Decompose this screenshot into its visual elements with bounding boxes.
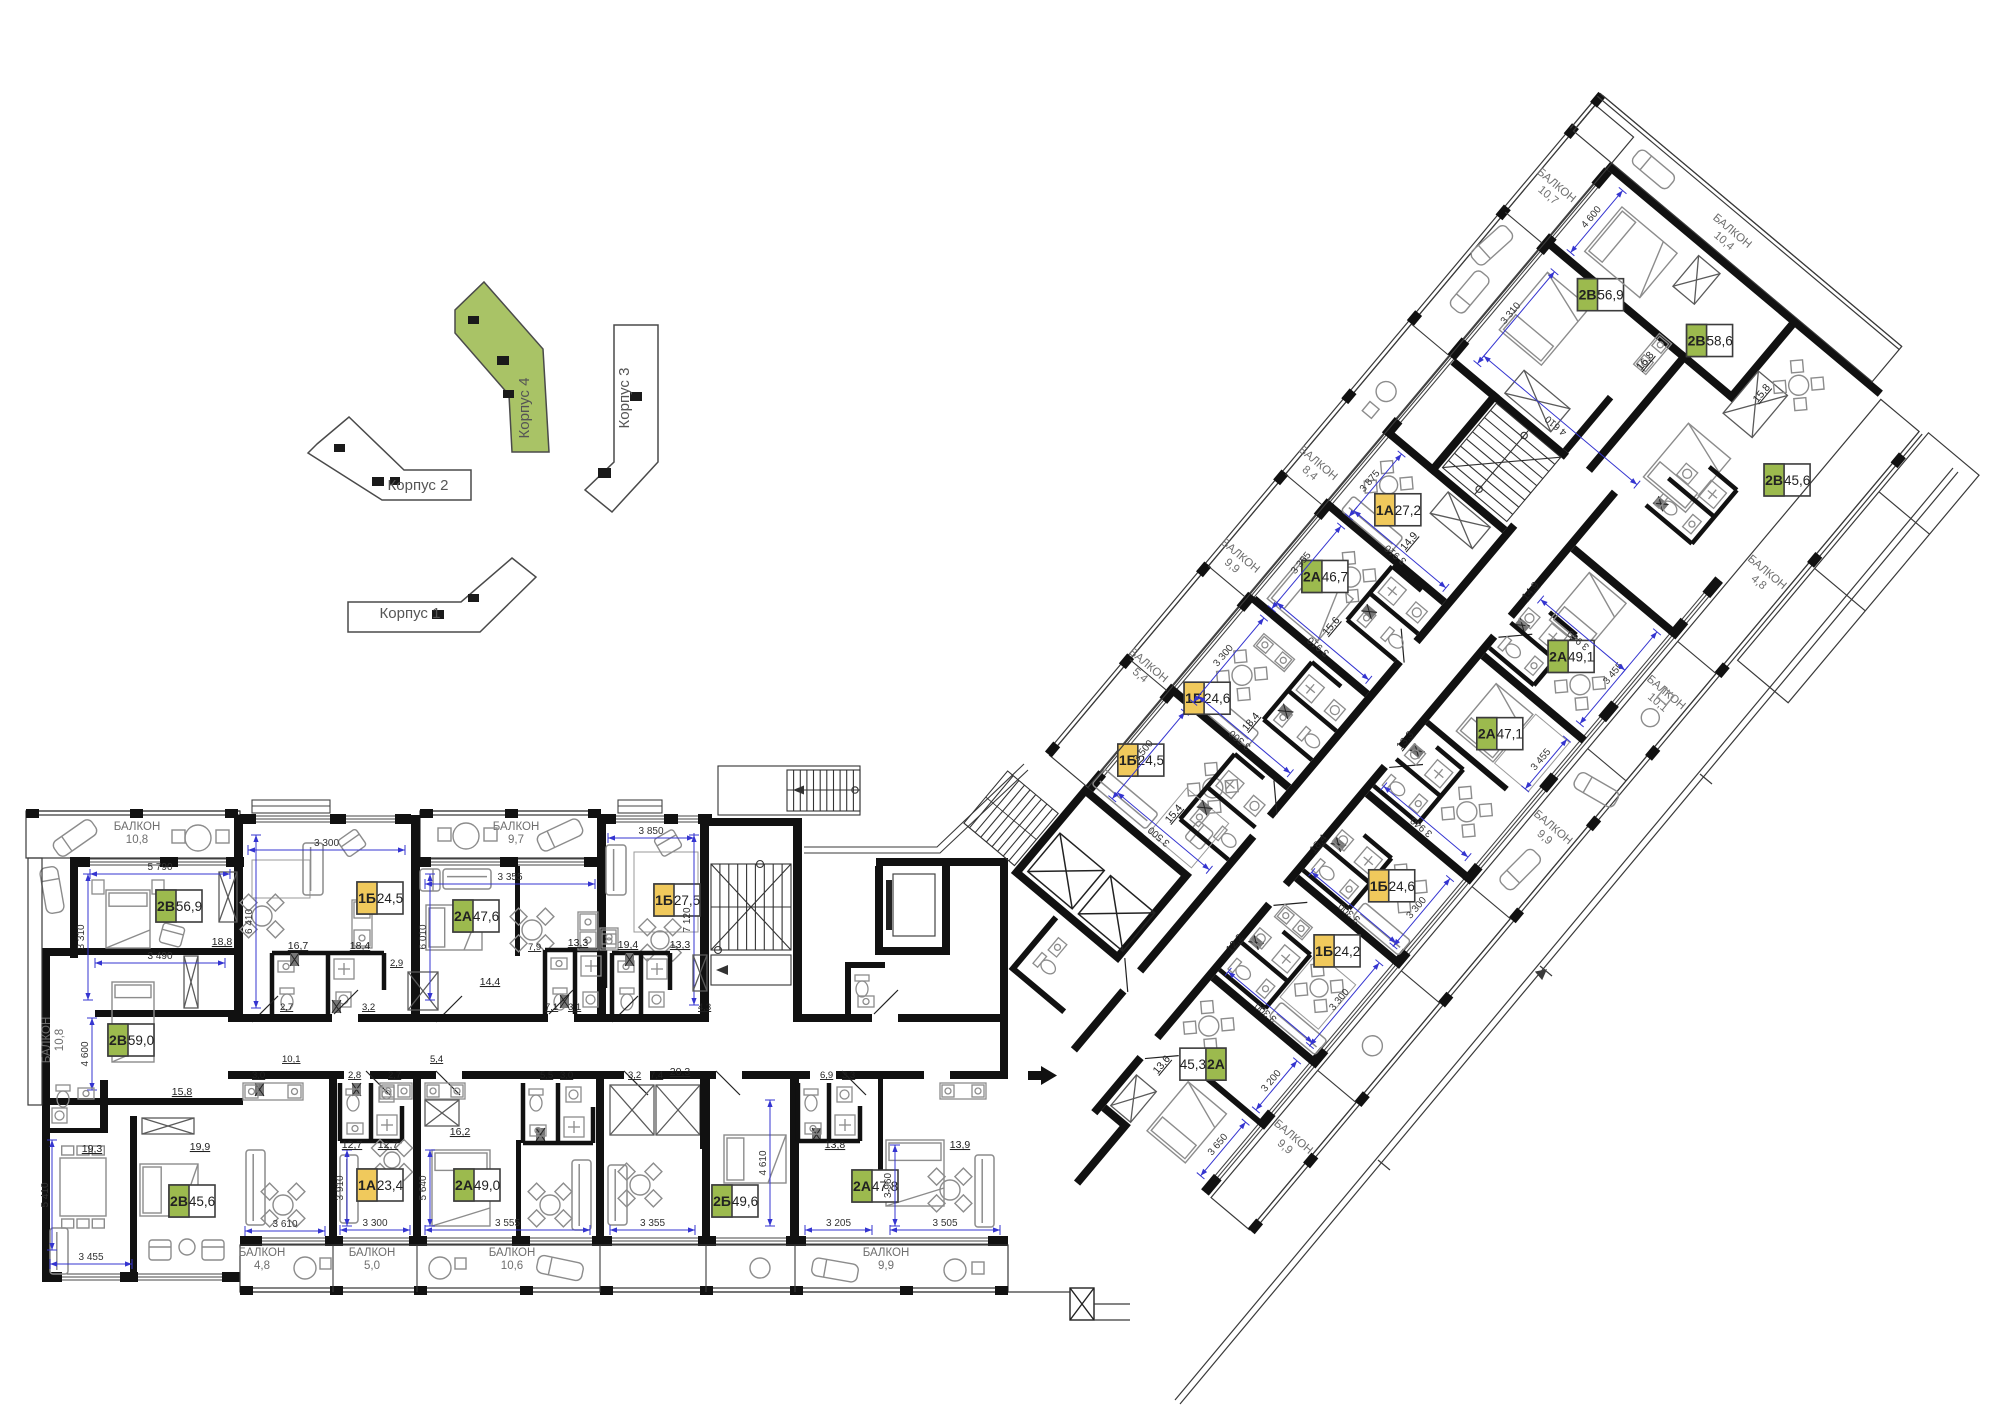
svg-text:45,6: 45,6 (189, 1194, 215, 1209)
svg-text:БАЛКОН: БАЛКОН (239, 1247, 286, 1259)
svg-text:2B: 2B (1579, 287, 1597, 303)
svg-text:3 910: 3 910 (335, 1175, 346, 1200)
svg-text:Корпус 1: Корпус 1 (380, 605, 441, 622)
svg-text:5 640: 5 640 (418, 1175, 429, 1200)
svg-text:Корпус 4: Корпус 4 (516, 378, 533, 439)
svg-text:7,9: 7,9 (528, 942, 541, 953)
svg-text:6 010: 6 010 (418, 924, 429, 949)
svg-text:3,3: 3,3 (842, 1070, 855, 1081)
svg-text:24,5: 24,5 (377, 891, 403, 906)
svg-text:Корпус 3: Корпус 3 (616, 368, 633, 429)
svg-text:13,8: 13,8 (825, 1139, 846, 1151)
svg-text:18,8: 18,8 (212, 936, 233, 948)
svg-text:2A: 2A (454, 908, 472, 924)
svg-text:1Б: 1Б (1370, 878, 1388, 894)
svg-text:2B: 2B (109, 1032, 127, 1048)
svg-text:2B: 2B (1688, 333, 1706, 349)
svg-text:3 960: 3 960 (883, 1173, 894, 1198)
svg-text:2B: 2B (1765, 472, 1783, 488)
svg-text:12,7: 12,7 (342, 1139, 363, 1151)
svg-text:3 555: 3 555 (495, 1218, 520, 1229)
svg-text:49,6: 49,6 (732, 1194, 758, 1209)
svg-text:3 300: 3 300 (314, 838, 339, 849)
svg-text:46,7: 46,7 (1322, 569, 1348, 584)
svg-text:2A: 2A (1207, 1056, 1225, 1072)
svg-text:БАЛКОН: БАЛКОН (349, 1247, 396, 1259)
svg-text:4,8: 4,8 (254, 1260, 270, 1272)
svg-text:7,4: 7,4 (650, 1070, 663, 1081)
svg-text:20,3: 20,3 (670, 1066, 691, 1078)
svg-text:БАЛКОН: БАЛКОН (863, 1247, 910, 1259)
svg-text:27,2: 27,2 (1395, 503, 1421, 518)
svg-text:3,1: 3,1 (568, 1002, 581, 1013)
svg-text:1A: 1A (358, 1177, 376, 1193)
svg-text:6,9: 6,9 (820, 1070, 833, 1081)
svg-text:24,2: 24,2 (1334, 944, 1360, 959)
svg-text:2,7: 2,7 (388, 1070, 401, 1081)
svg-text:3 455: 3 455 (78, 1252, 103, 1263)
svg-text:5,5: 5,5 (540, 1070, 553, 1081)
svg-text:Корпус 2: Корпус 2 (388, 477, 449, 494)
svg-text:2,8: 2,8 (348, 1070, 361, 1081)
svg-text:3 610: 3 610 (272, 1219, 297, 1230)
svg-text:3 850: 3 850 (638, 826, 663, 837)
svg-text:14,4: 14,4 (480, 976, 501, 988)
svg-text:3 505: 3 505 (932, 1218, 957, 1229)
svg-text:47,1: 47,1 (1497, 727, 1523, 742)
svg-text:47,6: 47,6 (473, 909, 499, 924)
svg-text:7,1: 7,1 (545, 1002, 558, 1013)
svg-text:2,7: 2,7 (280, 1002, 293, 1013)
svg-text:2B: 2B (170, 1193, 188, 1209)
svg-text:19,4: 19,4 (618, 939, 639, 951)
svg-text:БАЛКОН: БАЛКОН (114, 821, 161, 833)
svg-text:1Б: 1Б (1315, 943, 1333, 959)
svg-text:1Б: 1Б (358, 890, 376, 906)
svg-text:10,6: 10,6 (501, 1260, 523, 1272)
svg-text:1Б: 1Б (655, 892, 673, 908)
svg-text:6 410: 6 410 (244, 909, 255, 934)
svg-text:49,0: 49,0 (474, 1178, 500, 1193)
svg-text:2,9: 2,9 (390, 958, 403, 969)
svg-text:19,9: 19,9 (190, 1141, 211, 1153)
svg-text:16,2: 16,2 (450, 1126, 471, 1138)
svg-text:12,7: 12,7 (378, 1139, 399, 1151)
svg-text:5 790: 5 790 (147, 862, 172, 873)
svg-text:3 300: 3 300 (362, 1218, 387, 1229)
svg-text:2Б: 2Б (713, 1193, 731, 1209)
svg-text:3 310: 3 310 (76, 924, 87, 949)
svg-text:4 610: 4 610 (758, 1150, 769, 1175)
svg-text:2A: 2A (1549, 648, 1567, 664)
svg-text:56,9: 56,9 (1597, 288, 1623, 303)
svg-text:18,4: 18,4 (350, 940, 371, 952)
svg-text:13,3: 13,3 (568, 937, 589, 949)
svg-text:49,1: 49,1 (1568, 649, 1594, 664)
svg-text:2A: 2A (455, 1177, 473, 1193)
svg-text:58,6: 58,6 (1706, 334, 1732, 349)
svg-text:3,2: 3,2 (362, 1002, 375, 1013)
svg-text:27,5: 27,5 (674, 893, 700, 908)
svg-text:3 355: 3 355 (497, 872, 522, 883)
svg-text:45,6: 45,6 (1784, 473, 1810, 488)
svg-text:БАЛКОН: БАЛКОН (489, 1247, 536, 1259)
svg-text:23,4: 23,4 (377, 1178, 404, 1193)
svg-text:4,3: 4,3 (698, 1002, 711, 1013)
svg-text:2A: 2A (1478, 726, 1496, 742)
svg-text:3,0: 3,0 (560, 1070, 573, 1081)
svg-text:3 355: 3 355 (640, 1218, 665, 1229)
svg-text:3 490: 3 490 (147, 951, 172, 962)
svg-text:5,0: 5,0 (364, 1260, 380, 1272)
svg-text:7 120: 7 120 (682, 907, 693, 932)
svg-text:3 205: 3 205 (826, 1218, 851, 1229)
svg-text:13,3: 13,3 (670, 939, 691, 951)
svg-text:19,3: 19,3 (82, 1143, 103, 1155)
svg-text:10,8: 10,8 (54, 1029, 66, 1051)
svg-text:13,9: 13,9 (950, 1139, 971, 1151)
svg-text:3,2: 3,2 (628, 1070, 641, 1081)
svg-text:15,8: 15,8 (172, 1086, 193, 1098)
svg-text:10,8: 10,8 (126, 834, 148, 846)
svg-text:9,9: 9,9 (878, 1260, 894, 1272)
svg-text:2B: 2B (157, 898, 175, 914)
svg-text:3,0: 3,0 (252, 1070, 265, 1081)
svg-text:1A: 1A (1376, 502, 1394, 518)
svg-text:2A: 2A (853, 1178, 871, 1194)
svg-text:5 410: 5 410 (40, 1182, 51, 1207)
svg-text:БАЛКОН: БАЛКОН (41, 1017, 53, 1064)
svg-text:2A: 2A (1303, 568, 1321, 584)
svg-text:10,1: 10,1 (282, 1054, 301, 1065)
svg-text:45,3: 45,3 (1180, 1057, 1206, 1072)
svg-text:16,7: 16,7 (288, 940, 309, 952)
svg-text:59,0: 59,0 (128, 1033, 154, 1048)
svg-text:5,4: 5,4 (430, 1054, 443, 1065)
svg-text:24,6: 24,6 (1389, 879, 1415, 894)
svg-text:9,7: 9,7 (508, 834, 524, 846)
svg-text:БАЛКОН: БАЛКОН (493, 821, 540, 833)
svg-text:56,9: 56,9 (176, 899, 202, 914)
svg-text:4 600: 4 600 (80, 1041, 91, 1066)
